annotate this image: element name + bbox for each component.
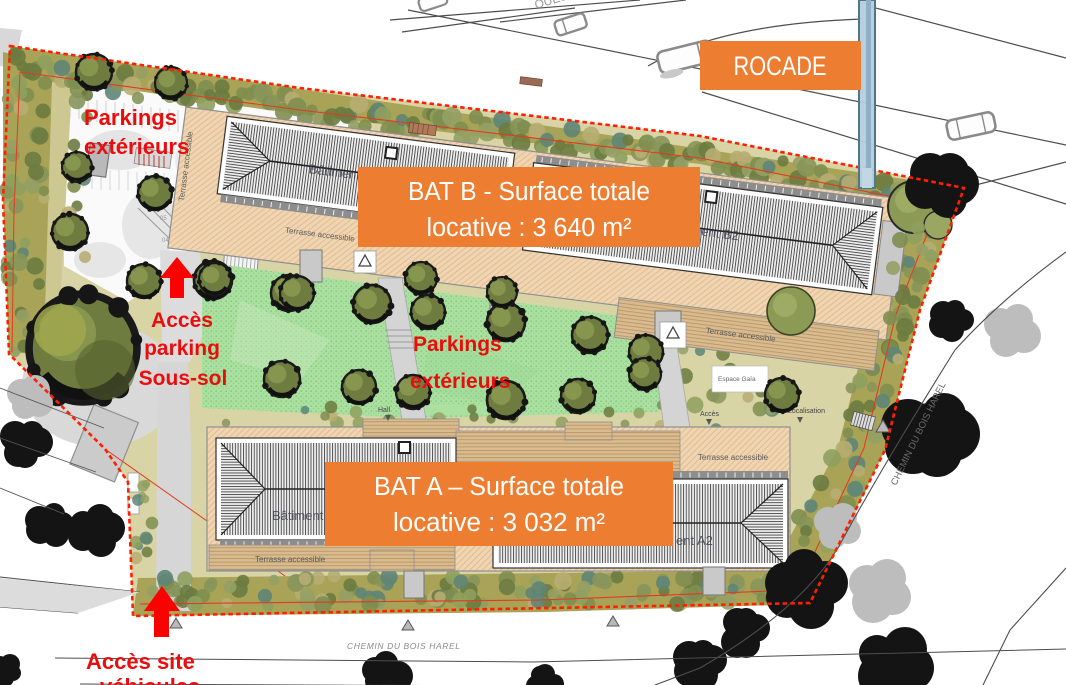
svg-text:BAT A – Surface totale: BAT A – Surface totale	[374, 473, 624, 501]
svg-text:Sous-sol: Sous-sol	[139, 367, 228, 390]
svg-text:parking: parking	[144, 337, 220, 360]
svg-text:Parkings: Parkings	[84, 105, 177, 130]
svg-text:ROCADE: ROCADE	[734, 51, 827, 81]
svg-text:Hall: Hall	[378, 407, 391, 414]
svg-text:Accès: Accès	[151, 309, 213, 332]
svg-text:BAT B - Surface totale: BAT B - Surface totale	[408, 178, 650, 206]
svg-text:locative : 3 032 m²: locative : 3 032 m²	[393, 509, 605, 537]
svg-text:Terrasse accessible: Terrasse accessible	[255, 555, 326, 564]
svg-text:Parkings: Parkings	[413, 333, 502, 356]
svg-text:véhicules: véhicules	[100, 674, 200, 685]
svg-text:Accès: Accès	[700, 411, 720, 418]
svg-text:Terrasse accessible: Terrasse accessible	[698, 453, 769, 462]
svg-text:Espace Gaïa: Espace Gaïa	[718, 376, 756, 383]
svg-text:locative : 3 640 m²: locative : 3 640 m²	[427, 214, 632, 242]
svg-text:extérieurs: extérieurs	[84, 134, 189, 159]
svg-text:ent A2: ent A2	[676, 533, 713, 548]
svg-text:extérieurs: extérieurs	[410, 370, 510, 393]
svg-text:Accès site: Accès site	[86, 649, 195, 674]
svg-text:CHEMIN DU BOIS HAREL: CHEMIN DU BOIS HAREL	[347, 641, 461, 651]
